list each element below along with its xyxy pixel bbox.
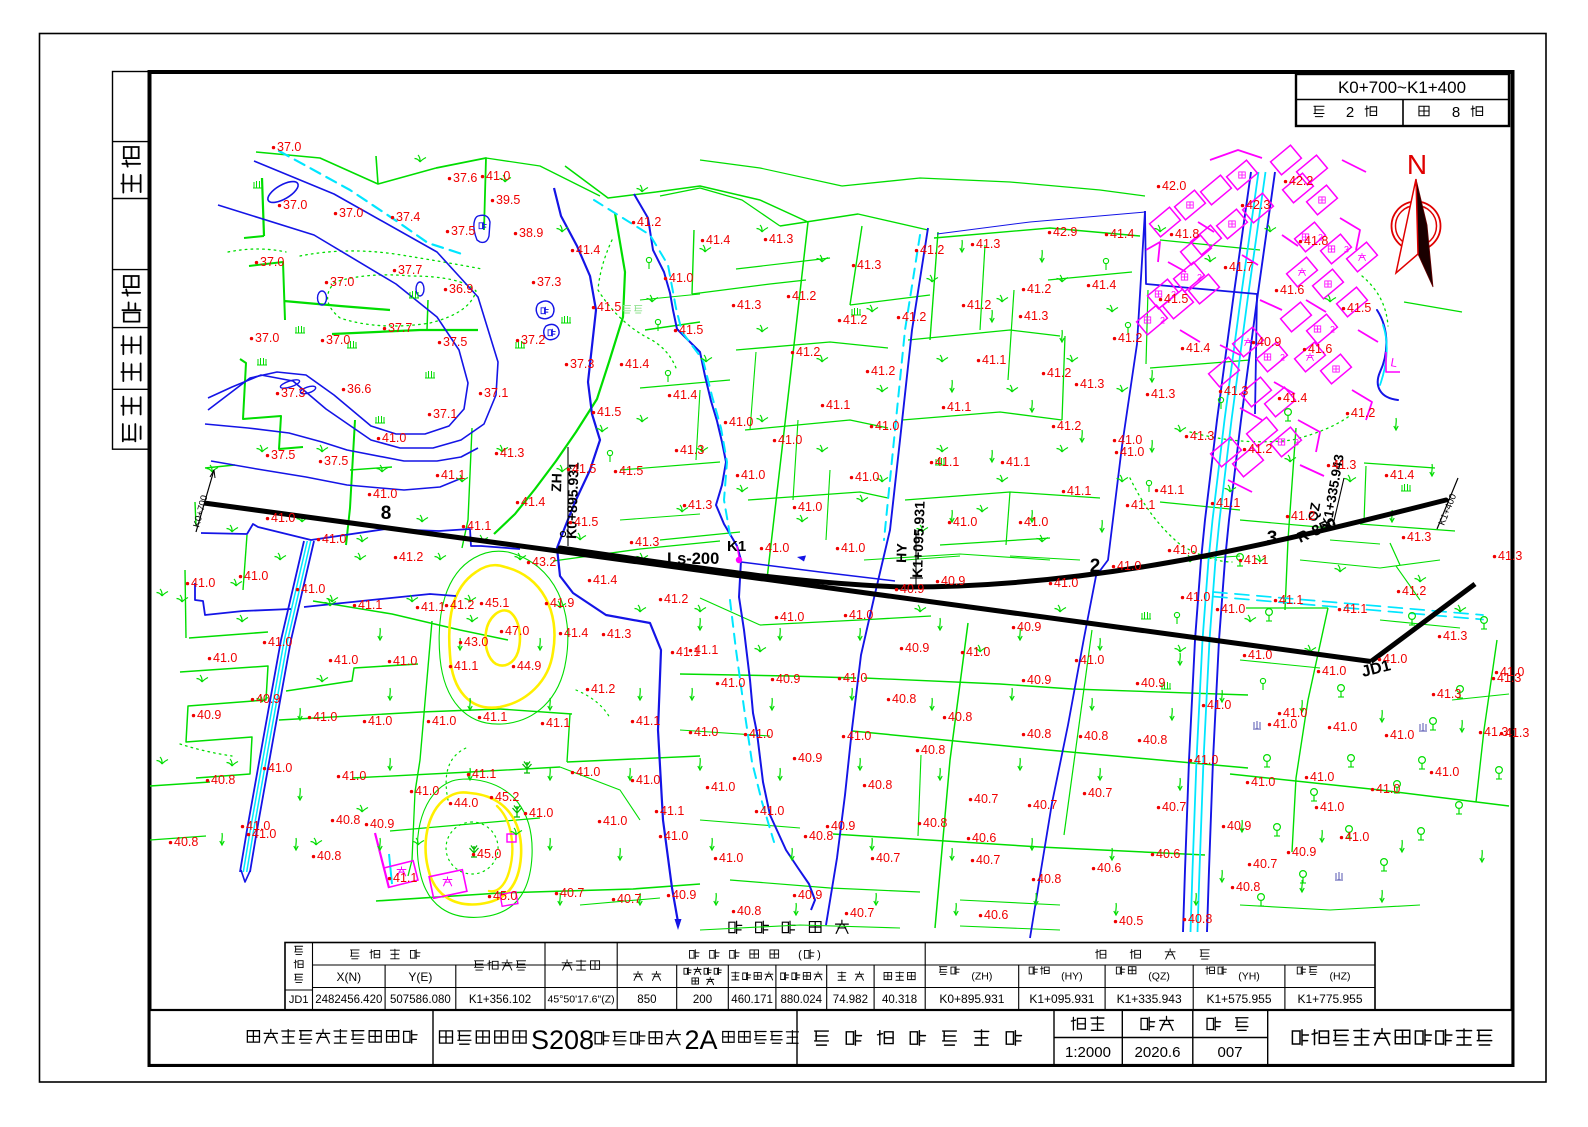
svg-text:41.2: 41.2 bbox=[967, 298, 991, 312]
svg-text:40.5: 40.5 bbox=[1119, 914, 1143, 928]
svg-text:41.0: 41.0 bbox=[191, 576, 215, 590]
svg-text:41.0: 41.0 bbox=[798, 500, 822, 514]
svg-text:41.0: 41.0 bbox=[760, 804, 784, 818]
svg-text:2: 2 bbox=[1330, 325, 1335, 335]
svg-text:41.0: 41.0 bbox=[313, 710, 337, 724]
svg-text:3: 3 bbox=[1267, 528, 1278, 549]
svg-text:37.3: 37.3 bbox=[537, 275, 561, 289]
svg-text:41.1: 41.1 bbox=[1244, 553, 1268, 567]
svg-text:507586.080: 507586.080 bbox=[390, 994, 451, 1006]
svg-text:37.0: 37.0 bbox=[277, 140, 301, 154]
svg-text:45.1: 45.1 bbox=[485, 596, 509, 610]
svg-text:37.5: 37.5 bbox=[451, 224, 475, 238]
svg-text:41.1: 41.1 bbox=[358, 598, 382, 612]
svg-text:41.4: 41.4 bbox=[1283, 391, 1307, 405]
svg-text:41.0: 41.0 bbox=[1345, 830, 1369, 844]
svg-text:37.1: 37.1 bbox=[484, 386, 508, 400]
svg-text:41.0: 41.0 bbox=[334, 653, 358, 667]
svg-text:41.0: 41.0 bbox=[721, 676, 745, 690]
svg-text:41.3: 41.3 bbox=[1407, 530, 1431, 544]
svg-text:41.0: 41.0 bbox=[244, 569, 268, 583]
svg-text:41.1: 41.1 bbox=[454, 659, 478, 673]
svg-text:(: ( bbox=[798, 949, 802, 961]
svg-text:41.5: 41.5 bbox=[572, 462, 596, 476]
svg-text:40.8: 40.8 bbox=[948, 710, 972, 724]
svg-text:41.0: 41.0 bbox=[966, 645, 990, 659]
svg-text:37.0: 37.0 bbox=[326, 333, 350, 347]
svg-text:2: 2 bbox=[1280, 353, 1285, 363]
svg-text:41.5: 41.5 bbox=[597, 300, 621, 314]
svg-text:Ls-200: Ls-200 bbox=[667, 550, 719, 568]
svg-text:41.2: 41.2 bbox=[1047, 366, 1071, 380]
svg-text:41.0: 41.0 bbox=[780, 610, 804, 624]
svg-text:41.2: 41.2 bbox=[1291, 509, 1315, 523]
svg-text:41.0: 41.0 bbox=[1251, 775, 1275, 789]
svg-text:41.4: 41.4 bbox=[1092, 278, 1116, 292]
svg-text:41.2: 41.2 bbox=[1248, 442, 1272, 456]
svg-text:41.3: 41.3 bbox=[1332, 458, 1356, 472]
svg-text:41.0: 41.0 bbox=[843, 671, 867, 685]
svg-text:36.9: 36.9 bbox=[449, 282, 473, 296]
svg-text:880.024: 880.024 bbox=[781, 994, 823, 1006]
svg-text:3: 3 bbox=[1294, 438, 1299, 448]
svg-text:41.0: 41.0 bbox=[636, 773, 660, 787]
svg-text:41.0: 41.0 bbox=[719, 851, 743, 865]
svg-text:3: 3 bbox=[1344, 245, 1349, 255]
svg-text:41.4: 41.4 bbox=[706, 233, 730, 247]
svg-text:41.1: 41.1 bbox=[1160, 483, 1184, 497]
svg-text:42.0: 42.0 bbox=[1162, 179, 1186, 193]
svg-text:41.1: 41.1 bbox=[1006, 455, 1030, 469]
svg-text:41.2: 41.2 bbox=[1351, 406, 1375, 420]
svg-text:40.9: 40.9 bbox=[798, 888, 822, 902]
svg-text:K1+575.955: K1+575.955 bbox=[1206, 992, 1271, 1006]
svg-text:41.0: 41.0 bbox=[669, 271, 693, 285]
svg-text:40.9: 40.9 bbox=[1227, 819, 1251, 833]
svg-text:40.9: 40.9 bbox=[905, 641, 929, 655]
svg-text:007: 007 bbox=[1217, 1044, 1242, 1061]
svg-text:40.9: 40.9 bbox=[1017, 620, 1041, 634]
svg-text:41.3: 41.3 bbox=[737, 298, 761, 312]
svg-text:41.0: 41.0 bbox=[432, 714, 456, 728]
svg-text:41.0: 41.0 bbox=[711, 780, 735, 794]
svg-text:41.1: 41.1 bbox=[1067, 484, 1091, 498]
svg-text:K0+895.931: K0+895.931 bbox=[939, 992, 1004, 1006]
svg-text:40.9: 40.9 bbox=[1292, 845, 1316, 859]
svg-text:41.4: 41.4 bbox=[576, 243, 600, 257]
svg-text:40.9: 40.9 bbox=[672, 888, 696, 902]
svg-text:40.8: 40.8 bbox=[211, 773, 235, 787]
svg-text:41.0: 41.0 bbox=[1173, 543, 1197, 557]
svg-text:40.6: 40.6 bbox=[1156, 847, 1180, 861]
svg-text:44.9: 44.9 bbox=[517, 659, 541, 673]
svg-text:45°50'17.6"(Z): 45°50'17.6"(Z) bbox=[548, 994, 615, 1006]
svg-text:41.4: 41.4 bbox=[521, 495, 545, 509]
svg-text:40.8: 40.8 bbox=[1188, 912, 1212, 926]
svg-text:40.8: 40.8 bbox=[1236, 880, 1260, 894]
svg-text:41.2: 41.2 bbox=[1057, 419, 1081, 433]
svg-text:40.7: 40.7 bbox=[1033, 798, 1057, 812]
svg-text:Y(E): Y(E) bbox=[408, 970, 432, 984]
svg-text:40.9: 40.9 bbox=[370, 817, 394, 831]
svg-text:41.3: 41.3 bbox=[688, 498, 712, 512]
svg-text:40.8: 40.8 bbox=[892, 692, 916, 706]
svg-text:40.6: 40.6 bbox=[984, 908, 1008, 922]
svg-text:41.0: 41.0 bbox=[1221, 602, 1245, 616]
svg-text:K1+095.931: K1+095.931 bbox=[909, 501, 928, 578]
svg-text:41.4: 41.4 bbox=[1390, 468, 1414, 482]
svg-text:41.0: 41.0 bbox=[486, 169, 510, 183]
svg-text:41.5: 41.5 bbox=[679, 323, 703, 337]
svg-text:45.0: 45.0 bbox=[477, 847, 501, 861]
svg-text:X(N): X(N) bbox=[336, 970, 361, 984]
svg-text:41.1: 41.1 bbox=[1279, 593, 1303, 607]
svg-text:40.7: 40.7 bbox=[876, 851, 900, 865]
svg-text:(HZ): (HZ) bbox=[1330, 971, 1351, 983]
svg-text:37.0: 37.0 bbox=[260, 255, 284, 269]
svg-text:41.0: 41.0 bbox=[694, 725, 718, 739]
svg-text:1:2000: 1:2000 bbox=[1065, 1044, 1111, 1061]
svg-text:41.2: 41.2 bbox=[792, 289, 816, 303]
svg-text:40.9: 40.9 bbox=[900, 582, 924, 596]
svg-text:41.0: 41.0 bbox=[749, 727, 773, 741]
svg-text:JD1: JD1 bbox=[289, 994, 309, 1006]
svg-text:2020.6: 2020.6 bbox=[1135, 1044, 1181, 1061]
svg-text:41.5: 41.5 bbox=[619, 464, 643, 478]
svg-text:41.2: 41.2 bbox=[1118, 331, 1142, 345]
svg-text:40.8: 40.8 bbox=[1027, 727, 1051, 741]
svg-text:41.2: 41.2 bbox=[843, 313, 867, 327]
svg-text:37.0: 37.0 bbox=[339, 206, 363, 220]
svg-text:40.6: 40.6 bbox=[1097, 861, 1121, 875]
svg-text:41.0: 41.0 bbox=[1194, 753, 1218, 767]
svg-text:39.5: 39.5 bbox=[496, 193, 520, 207]
svg-text:40.8: 40.8 bbox=[923, 816, 947, 830]
svg-text:2482456.420: 2482456.420 bbox=[315, 994, 382, 1006]
svg-text:40.6: 40.6 bbox=[972, 831, 996, 845]
svg-text:41.0: 41.0 bbox=[778, 433, 802, 447]
svg-text:41.0: 41.0 bbox=[1383, 652, 1407, 666]
svg-text:41.0: 41.0 bbox=[529, 806, 553, 820]
svg-text:41.3: 41.3 bbox=[1437, 687, 1461, 701]
svg-text:41.1: 41.1 bbox=[694, 643, 718, 657]
svg-text:41.3: 41.3 bbox=[1080, 377, 1104, 391]
svg-text:K1+775.955: K1+775.955 bbox=[1297, 992, 1362, 1006]
svg-text:41.0: 41.0 bbox=[271, 511, 295, 525]
svg-text:41.4: 41.4 bbox=[673, 388, 697, 402]
svg-text:41.1: 41.1 bbox=[393, 871, 417, 885]
svg-text:41.0: 41.0 bbox=[373, 487, 397, 501]
svg-text:41.1: 41.1 bbox=[546, 716, 570, 730]
svg-text:41.0: 41.0 bbox=[1390, 728, 1414, 742]
svg-text:41.4: 41.4 bbox=[625, 357, 649, 371]
svg-text:S208: S208 bbox=[531, 1025, 594, 1055]
svg-text:41.0: 41.0 bbox=[849, 608, 873, 622]
svg-text:40.8: 40.8 bbox=[1084, 729, 1108, 743]
svg-text:41.3: 41.3 bbox=[1505, 726, 1529, 740]
svg-text:41.2: 41.2 bbox=[450, 598, 474, 612]
svg-text:41.3: 41.3 bbox=[1498, 549, 1522, 563]
svg-text:37.0: 37.0 bbox=[330, 275, 354, 289]
svg-text:41.1: 41.1 bbox=[467, 519, 491, 533]
svg-text:40.9: 40.9 bbox=[941, 574, 965, 588]
svg-text:41.5: 41.5 bbox=[1347, 301, 1371, 315]
svg-text:40.8: 40.8 bbox=[737, 904, 761, 918]
svg-text:41.3: 41.3 bbox=[1190, 429, 1214, 443]
svg-text:): ) bbox=[817, 949, 821, 961]
svg-text:40.7: 40.7 bbox=[1162, 800, 1186, 814]
svg-text:41.2: 41.2 bbox=[871, 364, 895, 378]
svg-text:41.1: 41.1 bbox=[1131, 498, 1155, 512]
svg-text:40.9: 40.9 bbox=[1257, 335, 1281, 349]
svg-text:41.4: 41.4 bbox=[593, 573, 617, 587]
svg-text:41.6: 41.6 bbox=[1308, 342, 1332, 356]
svg-text:42.9: 42.9 bbox=[1053, 225, 1077, 239]
svg-text:41.0: 41.0 bbox=[729, 415, 753, 429]
svg-text:41.1: 41.1 bbox=[982, 353, 1006, 367]
svg-text:40.7: 40.7 bbox=[1253, 857, 1277, 871]
svg-text:41.6: 41.6 bbox=[1280, 283, 1304, 297]
svg-text:41.5: 41.5 bbox=[1164, 292, 1188, 306]
svg-text:40.7: 40.7 bbox=[617, 892, 641, 906]
svg-text:40.9: 40.9 bbox=[776, 672, 800, 686]
svg-text:41.3: 41.3 bbox=[1224, 384, 1248, 398]
svg-text:41.2: 41.2 bbox=[920, 243, 944, 257]
svg-text:37.5: 37.5 bbox=[271, 448, 295, 462]
svg-text:37.3: 37.3 bbox=[281, 386, 305, 400]
svg-text:41.0: 41.0 bbox=[741, 468, 765, 482]
svg-text:41.0: 41.0 bbox=[213, 651, 237, 665]
svg-text:41.3: 41.3 bbox=[976, 237, 1000, 251]
svg-text:41.3: 41.3 bbox=[680, 443, 704, 457]
svg-text:41.0: 41.0 bbox=[765, 541, 789, 555]
svg-text:43.2: 43.2 bbox=[532, 555, 556, 569]
svg-text:41.3: 41.3 bbox=[857, 258, 881, 272]
svg-text:37.6: 37.6 bbox=[453, 171, 477, 185]
svg-text:41.2: 41.2 bbox=[1027, 282, 1051, 296]
svg-text:41.1: 41.1 bbox=[660, 804, 684, 818]
svg-text:40.9: 40.9 bbox=[197, 708, 221, 722]
svg-text:41.5: 41.5 bbox=[597, 405, 621, 419]
svg-text:41.0: 41.0 bbox=[1320, 800, 1344, 814]
svg-text:40.8: 40.8 bbox=[1143, 733, 1167, 747]
svg-text:41.5: 41.5 bbox=[574, 515, 598, 529]
svg-text:K1+356.102: K1+356.102 bbox=[469, 994, 531, 1006]
svg-text:47.0: 47.0 bbox=[505, 624, 529, 638]
svg-text:43.0: 43.0 bbox=[464, 635, 488, 649]
svg-text:42.3: 42.3 bbox=[1246, 198, 1270, 212]
svg-text:37.7: 37.7 bbox=[388, 321, 412, 335]
svg-text:37.5: 37.5 bbox=[324, 454, 348, 468]
svg-text:41.9: 41.9 bbox=[550, 596, 574, 610]
svg-text:41.2: 41.2 bbox=[664, 592, 688, 606]
svg-text:41.1: 41.1 bbox=[472, 767, 496, 781]
svg-text:40.318: 40.318 bbox=[882, 994, 917, 1006]
svg-text:2: 2 bbox=[1346, 104, 1354, 121]
svg-text:41.1: 41.1 bbox=[935, 455, 959, 469]
svg-text:40.9: 40.9 bbox=[1141, 676, 1165, 690]
svg-text:(YH): (YH) bbox=[1238, 971, 1260, 983]
svg-text:41.0: 41.0 bbox=[1080, 653, 1104, 667]
svg-text:37.3: 37.3 bbox=[570, 357, 594, 371]
svg-text:41.1: 41.1 bbox=[1343, 602, 1367, 616]
svg-text:8: 8 bbox=[1452, 104, 1460, 121]
svg-text:41.3: 41.3 bbox=[1024, 309, 1048, 323]
svg-text:41.7: 41.7 bbox=[1229, 260, 1253, 274]
svg-text:41.2: 41.2 bbox=[902, 310, 926, 324]
svg-text:41.8: 41.8 bbox=[1175, 227, 1199, 241]
svg-text:41.0: 41.0 bbox=[301, 582, 325, 596]
svg-text:41.3: 41.3 bbox=[769, 232, 793, 246]
svg-text:41.0: 41.0 bbox=[268, 635, 292, 649]
svg-text:41.2: 41.2 bbox=[796, 345, 820, 359]
svg-text:38.9: 38.9 bbox=[519, 226, 543, 240]
svg-text:44.0: 44.0 bbox=[454, 796, 478, 810]
svg-text:41.0: 41.0 bbox=[415, 784, 439, 798]
svg-text:460.171: 460.171 bbox=[731, 994, 773, 1006]
svg-text:200: 200 bbox=[693, 994, 712, 1006]
svg-text:40.8: 40.8 bbox=[1037, 872, 1061, 886]
svg-text:(QZ): (QZ) bbox=[1148, 971, 1170, 983]
svg-text:41.0: 41.0 bbox=[1500, 665, 1524, 679]
svg-text:40.8: 40.8 bbox=[336, 813, 360, 827]
svg-text:41.1: 41.1 bbox=[1216, 496, 1240, 510]
svg-text:41.1: 41.1 bbox=[947, 400, 971, 414]
svg-text:40.9: 40.9 bbox=[256, 692, 280, 706]
svg-text:45.2: 45.2 bbox=[495, 790, 519, 804]
svg-text:41.0: 41.0 bbox=[1117, 559, 1141, 573]
svg-text:41.4: 41.4 bbox=[564, 626, 588, 640]
svg-text:41.4: 41.4 bbox=[1110, 227, 1134, 241]
svg-text:41.0: 41.0 bbox=[1273, 717, 1297, 731]
svg-text:36.6: 36.6 bbox=[347, 382, 371, 396]
svg-text:41.3: 41.3 bbox=[1151, 387, 1175, 401]
svg-text:HY: HY bbox=[893, 542, 910, 563]
svg-text:(HY): (HY) bbox=[1061, 971, 1083, 983]
svg-text:41.0: 41.0 bbox=[664, 829, 688, 843]
svg-text:K1+095.931: K1+095.931 bbox=[1029, 992, 1094, 1006]
svg-text:41.0: 41.0 bbox=[1310, 770, 1334, 784]
svg-text:37.5: 37.5 bbox=[443, 335, 467, 349]
svg-text:40.7: 40.7 bbox=[560, 886, 584, 900]
svg-text:41.1: 41.1 bbox=[483, 710, 507, 724]
svg-text:2: 2 bbox=[1197, 273, 1202, 283]
svg-text:41.0: 41.0 bbox=[1207, 698, 1231, 712]
svg-text:(ZH): (ZH) bbox=[971, 971, 992, 983]
svg-text:40.9: 40.9 bbox=[798, 751, 822, 765]
svg-text:41.1: 41.1 bbox=[636, 714, 660, 728]
svg-text:41.1: 41.1 bbox=[441, 468, 465, 482]
svg-text:41.1: 41.1 bbox=[826, 398, 850, 412]
svg-text:40.8: 40.8 bbox=[174, 835, 198, 849]
svg-text:37.1: 37.1 bbox=[433, 407, 457, 421]
svg-text:41.0: 41.0 bbox=[1322, 664, 1346, 678]
svg-text:41.3: 41.3 bbox=[500, 446, 524, 460]
svg-text:41.0: 41.0 bbox=[1186, 590, 1210, 604]
svg-text:41.0: 41.0 bbox=[322, 532, 346, 546]
svg-text:41.0: 41.0 bbox=[393, 654, 417, 668]
svg-text:41.0: 41.0 bbox=[576, 765, 600, 779]
svg-text:40.7: 40.7 bbox=[976, 853, 1000, 867]
svg-text:45.0: 45.0 bbox=[493, 889, 517, 903]
svg-text:N: N bbox=[1407, 149, 1427, 180]
svg-text:41.3: 41.3 bbox=[635, 535, 659, 549]
svg-text:41.0: 41.0 bbox=[1376, 782, 1400, 796]
svg-text:41.2: 41.2 bbox=[399, 550, 423, 564]
svg-text:40.8: 40.8 bbox=[317, 849, 341, 863]
svg-text:41.0: 41.0 bbox=[1435, 765, 1459, 779]
svg-text:37.2: 37.2 bbox=[521, 333, 545, 347]
svg-text:40.9: 40.9 bbox=[831, 819, 855, 833]
svg-text:40.7: 40.7 bbox=[1088, 786, 1112, 800]
svg-text:37.0: 37.0 bbox=[255, 331, 279, 345]
svg-text:40.7: 40.7 bbox=[850, 906, 874, 920]
svg-text:41.3: 41.3 bbox=[1443, 629, 1467, 643]
svg-text:41.2: 41.2 bbox=[637, 215, 661, 229]
svg-text:41.0: 41.0 bbox=[847, 729, 871, 743]
svg-text:41.0: 41.0 bbox=[603, 814, 627, 828]
svg-text:41.4: 41.4 bbox=[1186, 341, 1210, 355]
svg-text:41.0: 41.0 bbox=[1248, 648, 1272, 662]
svg-text:2A: 2A bbox=[685, 1025, 718, 1055]
svg-text:41.0: 41.0 bbox=[268, 761, 292, 775]
svg-text:41.0: 41.0 bbox=[1054, 576, 1078, 590]
svg-text:41.0: 41.0 bbox=[875, 419, 899, 433]
svg-text:41.2: 41.2 bbox=[1402, 584, 1426, 598]
svg-text:37.0: 37.0 bbox=[283, 198, 307, 212]
svg-text:8: 8 bbox=[381, 503, 392, 524]
svg-text:2: 2 bbox=[1090, 556, 1101, 577]
svg-text:40.8: 40.8 bbox=[868, 778, 892, 792]
svg-text:41.0: 41.0 bbox=[1333, 720, 1357, 734]
svg-text:40.8: 40.8 bbox=[809, 829, 833, 843]
svg-text:K1+335.943: K1+335.943 bbox=[1117, 992, 1182, 1006]
svg-text:37.4: 37.4 bbox=[396, 210, 420, 224]
svg-text:41.2: 41.2 bbox=[591, 682, 615, 696]
svg-text:41.0: 41.0 bbox=[1024, 515, 1048, 529]
svg-text:41.0: 41.0 bbox=[368, 714, 392, 728]
svg-text:850: 850 bbox=[637, 994, 656, 1006]
svg-text:41.0: 41.0 bbox=[382, 431, 406, 445]
svg-text:2: 2 bbox=[1160, 316, 1165, 326]
svg-text:41.0: 41.0 bbox=[841, 541, 865, 555]
svg-text:40.9: 40.9 bbox=[1027, 673, 1051, 687]
svg-text:40.7: 40.7 bbox=[974, 792, 998, 806]
svg-text:41.0: 41.0 bbox=[855, 470, 879, 484]
svg-text:ZH: ZH bbox=[548, 473, 565, 492]
svg-text:41.1: 41.1 bbox=[421, 600, 445, 614]
svg-text:41.3: 41.3 bbox=[607, 627, 631, 641]
svg-text:41.8: 41.8 bbox=[1304, 234, 1328, 248]
svg-text:41.0: 41.0 bbox=[252, 827, 276, 841]
svg-text:41.0: 41.0 bbox=[953, 515, 977, 529]
svg-text:41.0: 41.0 bbox=[1120, 445, 1144, 459]
svg-text:41.0: 41.0 bbox=[342, 769, 366, 783]
svg-text:42.2: 42.2 bbox=[1289, 174, 1313, 188]
svg-text:37.7: 37.7 bbox=[398, 263, 422, 277]
svg-text:40.8: 40.8 bbox=[921, 743, 945, 757]
svg-text:K0+700~K1+400: K0+700~K1+400 bbox=[1338, 78, 1466, 97]
svg-text:74.982: 74.982 bbox=[833, 994, 868, 1006]
